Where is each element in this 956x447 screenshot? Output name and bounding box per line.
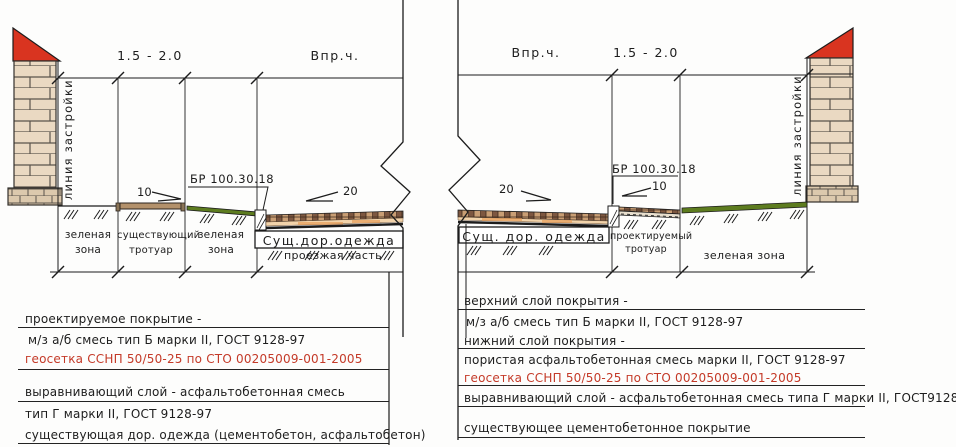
left-sidewalk-dimension: 1.5 - 2.0 bbox=[110, 48, 190, 63]
note-row: тип Г марки II, ГОСТ 9128-97 bbox=[18, 402, 389, 426]
left-existing-sidewalk bbox=[116, 203, 185, 211]
note-row-geogrid: геосетка ССНП 50/50-25 по СТО 00205009-0… bbox=[18, 352, 389, 370]
curb-label-left: БР 100.30.18 bbox=[190, 172, 274, 186]
building-line-label-right: линия застройки bbox=[790, 78, 804, 196]
zone-left-green-1: зеленая зона bbox=[58, 228, 118, 258]
zone-text: зона bbox=[185, 243, 257, 258]
building-line-label-left: линия застройки bbox=[61, 82, 75, 200]
right-curb bbox=[608, 206, 619, 227]
note-row: м/з а/б смесь тип Б марки II, ГОСТ 9128-… bbox=[458, 310, 865, 334]
note-row: м/з а/б смесь тип Б марки II, ГОСТ 9128-… bbox=[18, 328, 389, 352]
left-foundation bbox=[8, 188, 62, 205]
right-roof bbox=[806, 28, 853, 58]
zone-text: зона bbox=[58, 243, 118, 258]
note-row: пористая асфальтобетонная смесь марки II… bbox=[458, 349, 865, 369]
slope-right-road: 20 bbox=[499, 182, 514, 196]
zone-new-sidewalk: проектируемый тротуар bbox=[610, 230, 682, 256]
right-green-strip bbox=[682, 202, 807, 213]
road-cross-section-drawing: 1.5 - 2.0 Впр.ч. Впр.ч. 1.5 - 2.0 линия … bbox=[0, 0, 956, 447]
existing-pavement-label-left: Сущ.дор.одежда bbox=[258, 233, 400, 248]
break-line-left bbox=[381, 0, 410, 337]
left-roof bbox=[13, 28, 60, 61]
note-row: выравнивающий слой - асфальтобетонная см… bbox=[18, 370, 389, 402]
note-row-geogrid: геосетка ССНП 50/50-25 по СТО 00205009-0… bbox=[458, 369, 865, 386]
slope-left-sidewalk: 10 bbox=[137, 185, 152, 199]
zone-roadway: проезжая часть bbox=[263, 249, 403, 262]
right-wall bbox=[810, 58, 853, 186]
right-building bbox=[806, 28, 858, 202]
note-row: выравнивающий слой - асфальтобетонная см… bbox=[458, 386, 865, 407]
right-roadway-dimension: Впр.ч. bbox=[501, 45, 571, 60]
left-curb bbox=[255, 210, 266, 230]
left-wall bbox=[14, 61, 56, 188]
zone-text: зеленая bbox=[185, 228, 257, 243]
slope-right-sidewalk: 10 bbox=[652, 179, 667, 193]
left-green-strip bbox=[187, 206, 257, 216]
note-row: нижний слой покрытия - bbox=[458, 334, 865, 349]
zone-right-green: зеленая зона bbox=[682, 249, 807, 262]
slope-left-road: 20 bbox=[343, 184, 358, 198]
note-row: верхний слой покрытия - bbox=[458, 288, 865, 310]
curb-label-right: БР 100.30.18 bbox=[612, 162, 696, 176]
right-foundation bbox=[806, 186, 858, 202]
zone-text: зеленая bbox=[58, 228, 118, 243]
right-new-sidewalk bbox=[619, 207, 680, 218]
right-sidewalk-dimension: 1.5 - 2.0 bbox=[606, 45, 686, 60]
zone-text: проектируемый bbox=[610, 230, 682, 243]
left-building bbox=[8, 28, 62, 205]
note-row: проектируемое покрытие - bbox=[18, 306, 389, 328]
left-roadway-dimension: Впр.ч. bbox=[300, 48, 370, 63]
zone-text: существующий bbox=[117, 228, 185, 243]
zone-text: тротуар bbox=[610, 243, 682, 256]
left-notes-block: проектируемое покрытие - м/з а/б смесь т… bbox=[18, 306, 389, 444]
zone-left-green-2: зеленая зона bbox=[185, 228, 257, 258]
top-dimension-lines bbox=[58, 74, 853, 78]
note-row: существующая дор. одежда (цементобетон, … bbox=[18, 426, 389, 444]
right-notes-block: верхний слой покрытия - м/з а/б смесь ти… bbox=[458, 288, 865, 438]
existing-pavement-label-right: Сущ. дор. одежда bbox=[462, 229, 606, 244]
zone-existing-sidewalk: существующий тротуар bbox=[117, 228, 185, 258]
zone-text: тротуар bbox=[117, 243, 185, 258]
note-row: существующее цементобетонное покрытие bbox=[458, 407, 865, 438]
slope-symbols bbox=[152, 188, 651, 201]
